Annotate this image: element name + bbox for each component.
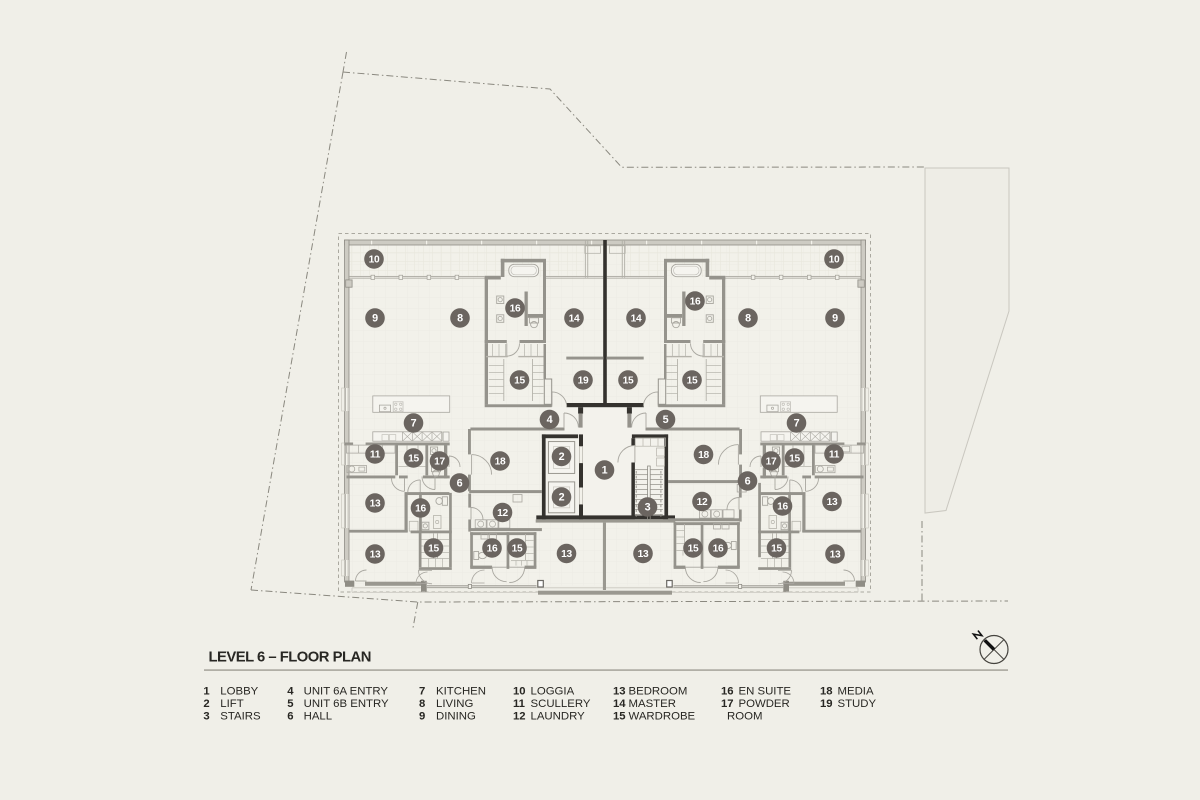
svg-text:9: 9: [372, 313, 378, 325]
svg-text:HALL: HALL: [304, 710, 333, 722]
svg-text:LIVING: LIVING: [436, 698, 473, 710]
svg-text:MEDIA: MEDIA: [838, 686, 874, 698]
svg-text:WARDROBE: WARDROBE: [629, 710, 696, 722]
svg-text:13: 13: [370, 550, 381, 561]
svg-text:STAIRS: STAIRS: [220, 710, 261, 722]
svg-text:LAUNDRY: LAUNDRY: [531, 710, 586, 722]
svg-text:19: 19: [820, 698, 833, 710]
svg-text:DINING: DINING: [436, 710, 476, 722]
svg-text:8: 8: [745, 313, 751, 325]
svg-text:7: 7: [411, 418, 417, 430]
svg-text:BEDROOM: BEDROOM: [629, 686, 688, 698]
svg-text:10: 10: [829, 255, 840, 266]
svg-text:9: 9: [832, 313, 838, 325]
svg-text:2: 2: [559, 492, 565, 504]
svg-text:13: 13: [613, 686, 626, 698]
svg-text:6: 6: [745, 476, 751, 488]
svg-text:13: 13: [370, 499, 381, 510]
svg-text:16: 16: [510, 304, 521, 315]
svg-text:3: 3: [645, 502, 651, 514]
svg-text:16: 16: [487, 544, 498, 555]
svg-text:13: 13: [827, 497, 838, 508]
svg-text:14: 14: [613, 698, 626, 710]
svg-text:SCULLERY: SCULLERY: [531, 698, 591, 710]
svg-text:15: 15: [789, 454, 800, 465]
svg-text:15: 15: [771, 544, 782, 555]
svg-text:14: 14: [631, 314, 642, 325]
svg-text:MASTER: MASTER: [629, 698, 676, 710]
svg-text:POWDER: POWDER: [739, 698, 790, 710]
svg-text:LOBBY: LOBBY: [220, 686, 258, 698]
svg-text:16: 16: [721, 686, 734, 698]
svg-text:EN SUITE: EN SUITE: [739, 686, 792, 698]
svg-text:15: 15: [687, 376, 698, 387]
svg-text:12: 12: [513, 710, 526, 722]
svg-text:1: 1: [203, 686, 209, 698]
svg-text:UNIT 6B ENTRY: UNIT 6B ENTRY: [304, 698, 389, 710]
svg-text:10: 10: [513, 686, 526, 698]
svg-text:5: 5: [663, 414, 669, 426]
svg-text:2: 2: [203, 698, 209, 710]
svg-text:16: 16: [713, 544, 724, 555]
svg-text:17: 17: [766, 457, 777, 468]
svg-text:16: 16: [415, 504, 426, 515]
svg-text:7: 7: [419, 686, 425, 698]
svg-text:17: 17: [434, 457, 445, 468]
svg-text:15: 15: [512, 544, 523, 555]
svg-text:12: 12: [497, 508, 508, 519]
svg-text:6: 6: [457, 478, 463, 490]
svg-text:UNIT 6A ENTRY: UNIT 6A ENTRY: [304, 686, 389, 698]
svg-text:16: 16: [777, 502, 788, 513]
svg-text:13: 13: [561, 549, 572, 560]
svg-text:LEVEL 6 – FLOOR PLAN: LEVEL 6 – FLOOR PLAN: [209, 650, 371, 666]
svg-text:15: 15: [688, 544, 699, 555]
svg-text:11: 11: [829, 450, 840, 461]
svg-text:19: 19: [578, 376, 589, 387]
svg-text:13: 13: [830, 550, 841, 561]
svg-text:STUDY: STUDY: [838, 698, 877, 710]
svg-text:15: 15: [408, 454, 419, 465]
svg-text:15: 15: [623, 376, 634, 387]
svg-text:8: 8: [419, 698, 425, 710]
svg-text:11: 11: [513, 698, 525, 710]
svg-text:8: 8: [457, 313, 463, 325]
svg-text:13: 13: [638, 549, 649, 560]
svg-text:6: 6: [287, 710, 293, 722]
svg-text:4: 4: [287, 686, 294, 698]
svg-text:15: 15: [613, 710, 626, 722]
svg-text:12: 12: [697, 497, 708, 508]
svg-text:10: 10: [369, 255, 380, 266]
svg-text:KITCHEN: KITCHEN: [436, 686, 486, 698]
svg-text:3: 3: [203, 710, 209, 722]
svg-text:18: 18: [820, 686, 833, 698]
svg-text:15: 15: [428, 544, 439, 555]
svg-text:LOGGIA: LOGGIA: [531, 686, 575, 698]
svg-text:LIFT: LIFT: [220, 698, 243, 710]
svg-text:4: 4: [547, 414, 553, 426]
svg-text:2: 2: [559, 451, 565, 463]
svg-text:17: 17: [721, 698, 734, 710]
svg-text:18: 18: [495, 457, 506, 468]
svg-text:ROOM: ROOM: [727, 710, 762, 722]
svg-text:7: 7: [794, 418, 800, 430]
svg-text:16: 16: [690, 297, 701, 308]
svg-text:14: 14: [569, 314, 580, 325]
svg-text:5: 5: [287, 698, 293, 710]
svg-text:15: 15: [514, 376, 525, 387]
svg-text:11: 11: [370, 450, 381, 461]
svg-text:18: 18: [698, 450, 709, 461]
svg-text:1: 1: [602, 465, 608, 477]
svg-text:9: 9: [419, 710, 425, 722]
